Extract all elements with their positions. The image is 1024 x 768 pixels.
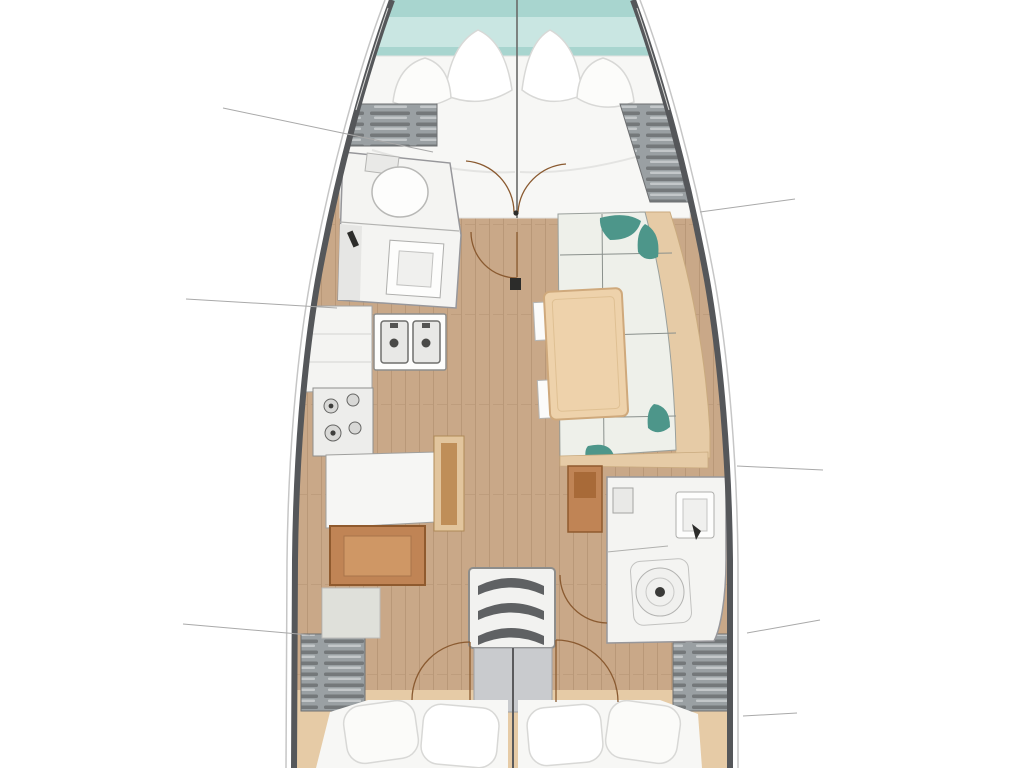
sink-drain: [422, 339, 431, 348]
water-highlight: [350, 17, 680, 47]
pillow: [420, 703, 501, 768]
sink-faucet: [390, 323, 398, 328]
forward-head: [338, 152, 461, 308]
callout-line: [743, 713, 797, 716]
mast-post: [510, 278, 521, 290]
salon-table: [533, 288, 629, 420]
sink-faucet: [422, 323, 430, 328]
yacht-floor-plan: [0, 0, 1024, 768]
galley-counter-upper: [305, 306, 372, 392]
seat-back-inset: [441, 443, 457, 525]
aft-head: [607, 477, 726, 643]
floor-plan-drawing: [0, 0, 1024, 768]
burner-center: [330, 430, 335, 435]
pillow: [526, 703, 605, 767]
pillow: [603, 698, 682, 765]
door-meeting-dot: [513, 210, 518, 215]
table-top: [544, 288, 629, 420]
salon-end-seat-inset: [574, 472, 596, 498]
aft-sink-basin: [683, 499, 707, 531]
locker-starboard-aft: [673, 634, 736, 711]
aft-head-locker: [613, 488, 633, 513]
callout-line: [737, 466, 823, 470]
shower-drain-center: [655, 587, 665, 597]
callout-line: [700, 199, 795, 212]
burner-center: [329, 404, 334, 409]
toilet-bowl: [372, 167, 428, 217]
galley-end-cabinet: [322, 588, 380, 638]
nav-seat-cushion: [344, 536, 411, 576]
locker-port-aft: [301, 634, 365, 711]
burner: [347, 394, 359, 406]
locker-port-fore: [348, 104, 437, 146]
pillow: [341, 698, 420, 765]
callout-line: [183, 624, 310, 635]
head-sink-basin: [397, 251, 433, 287]
stove: [313, 388, 373, 456]
sink-drain: [390, 339, 399, 348]
burner: [349, 422, 361, 434]
callout-line: [747, 620, 820, 633]
chart-table: [326, 452, 436, 528]
